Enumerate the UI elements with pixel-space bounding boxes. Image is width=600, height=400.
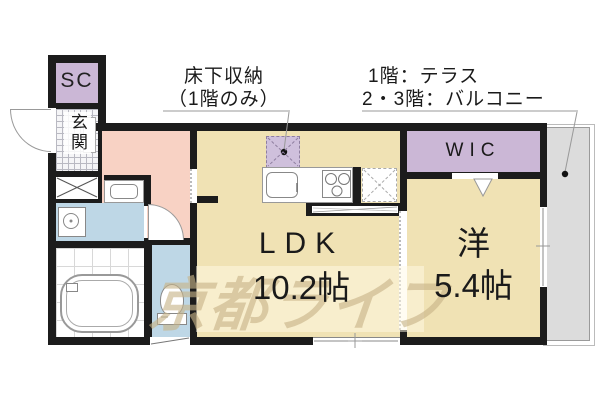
wall [144, 177, 151, 206]
hall-ldk-sliding-opening [190, 169, 197, 203]
kitchen-counter-slot [312, 206, 398, 213]
wall [48, 205, 56, 345]
ldk-size-label: 10.2帖 [196, 261, 407, 309]
wall [352, 167, 361, 204]
underfloor-label-line2: （1階のみ） [168, 84, 280, 111]
floor-note-line2: 2・3階：バルコニー [362, 84, 545, 111]
ldk-label: LDK [196, 227, 407, 261]
wall [96, 123, 546, 131]
entrance-door-arc [10, 109, 51, 152]
entrance-closet [56, 177, 98, 199]
washbasin-sink [110, 184, 138, 199]
shoe-closet-label: SC [56, 69, 98, 93]
western-window [540, 207, 547, 287]
western-room-label: 洋 [407, 217, 540, 265]
kitchen-sink [266, 172, 298, 198]
stove [322, 170, 351, 198]
floor-plan: 床下収納 （1階のみ） 1階：テラス 2・3階：バルコニー SC 玄関 WIC … [0, 0, 600, 400]
western-room-size-label: 5.4帖 [407, 259, 540, 307]
wall [190, 131, 197, 169]
balcony [546, 127, 590, 341]
wic-door-opening [452, 173, 498, 179]
refrigerator-space [362, 168, 397, 202]
washing-machine-pan [58, 207, 86, 237]
shower-fixture [66, 283, 78, 292]
underfloor-storage-square [266, 136, 300, 168]
wall [196, 196, 218, 203]
wall [56, 241, 144, 248]
wic-label: WIC [403, 140, 543, 162]
entrance-label: 玄関 [64, 112, 91, 154]
